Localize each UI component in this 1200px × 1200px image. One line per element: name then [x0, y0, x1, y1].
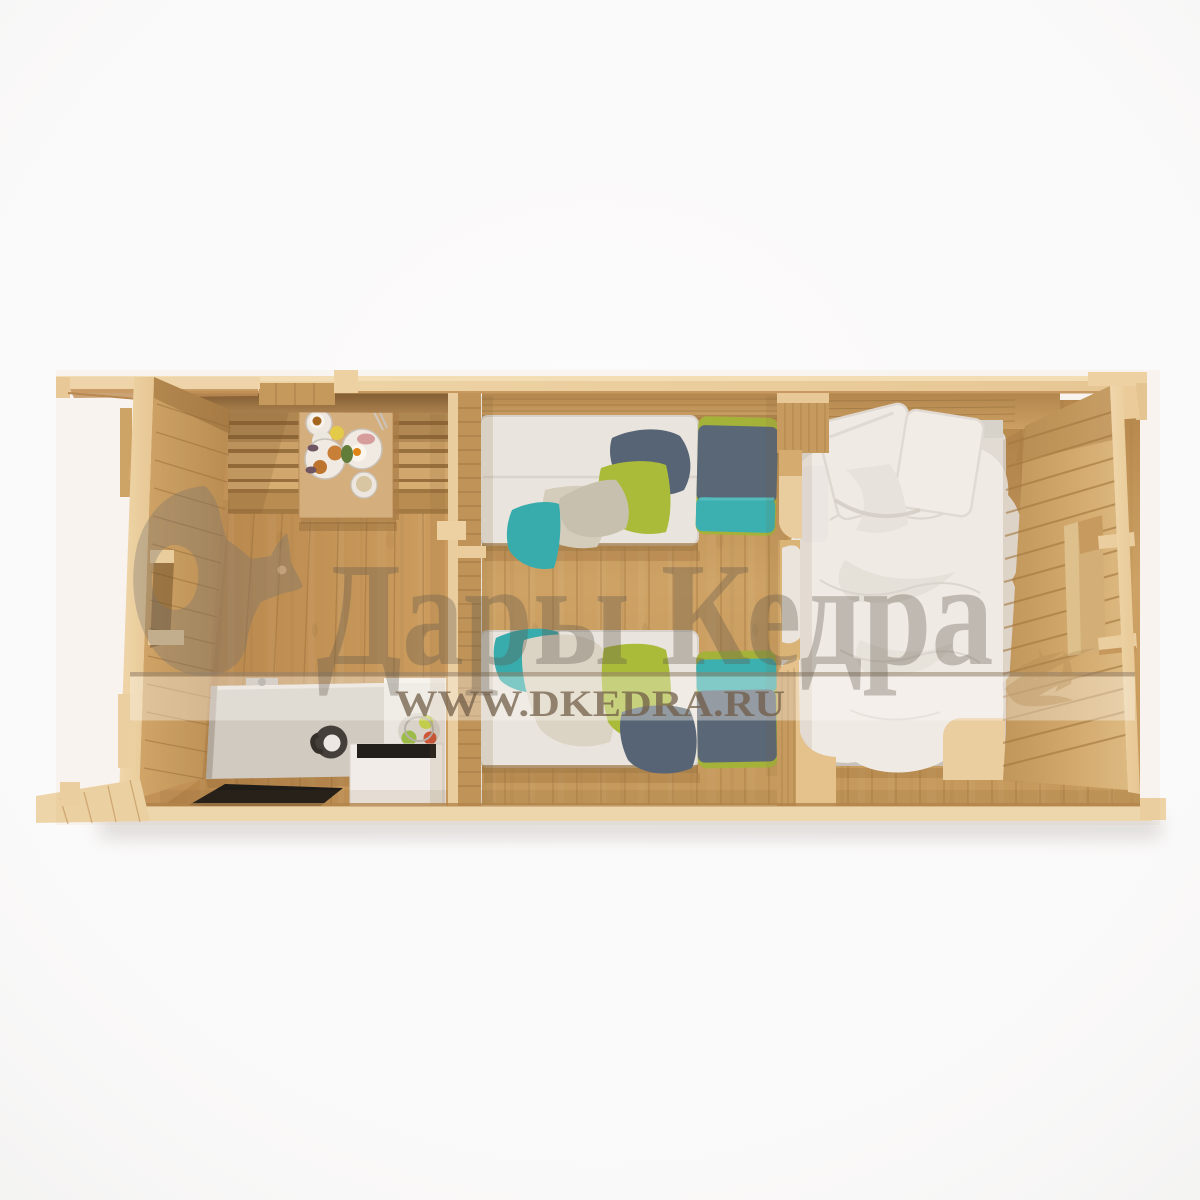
svg-text:Дары Кедра: Дары Кедра — [317, 533, 994, 697]
svg-text:WWW.DKEDRA.RU: WWW.DKEDRA.RU — [395, 684, 785, 725]
